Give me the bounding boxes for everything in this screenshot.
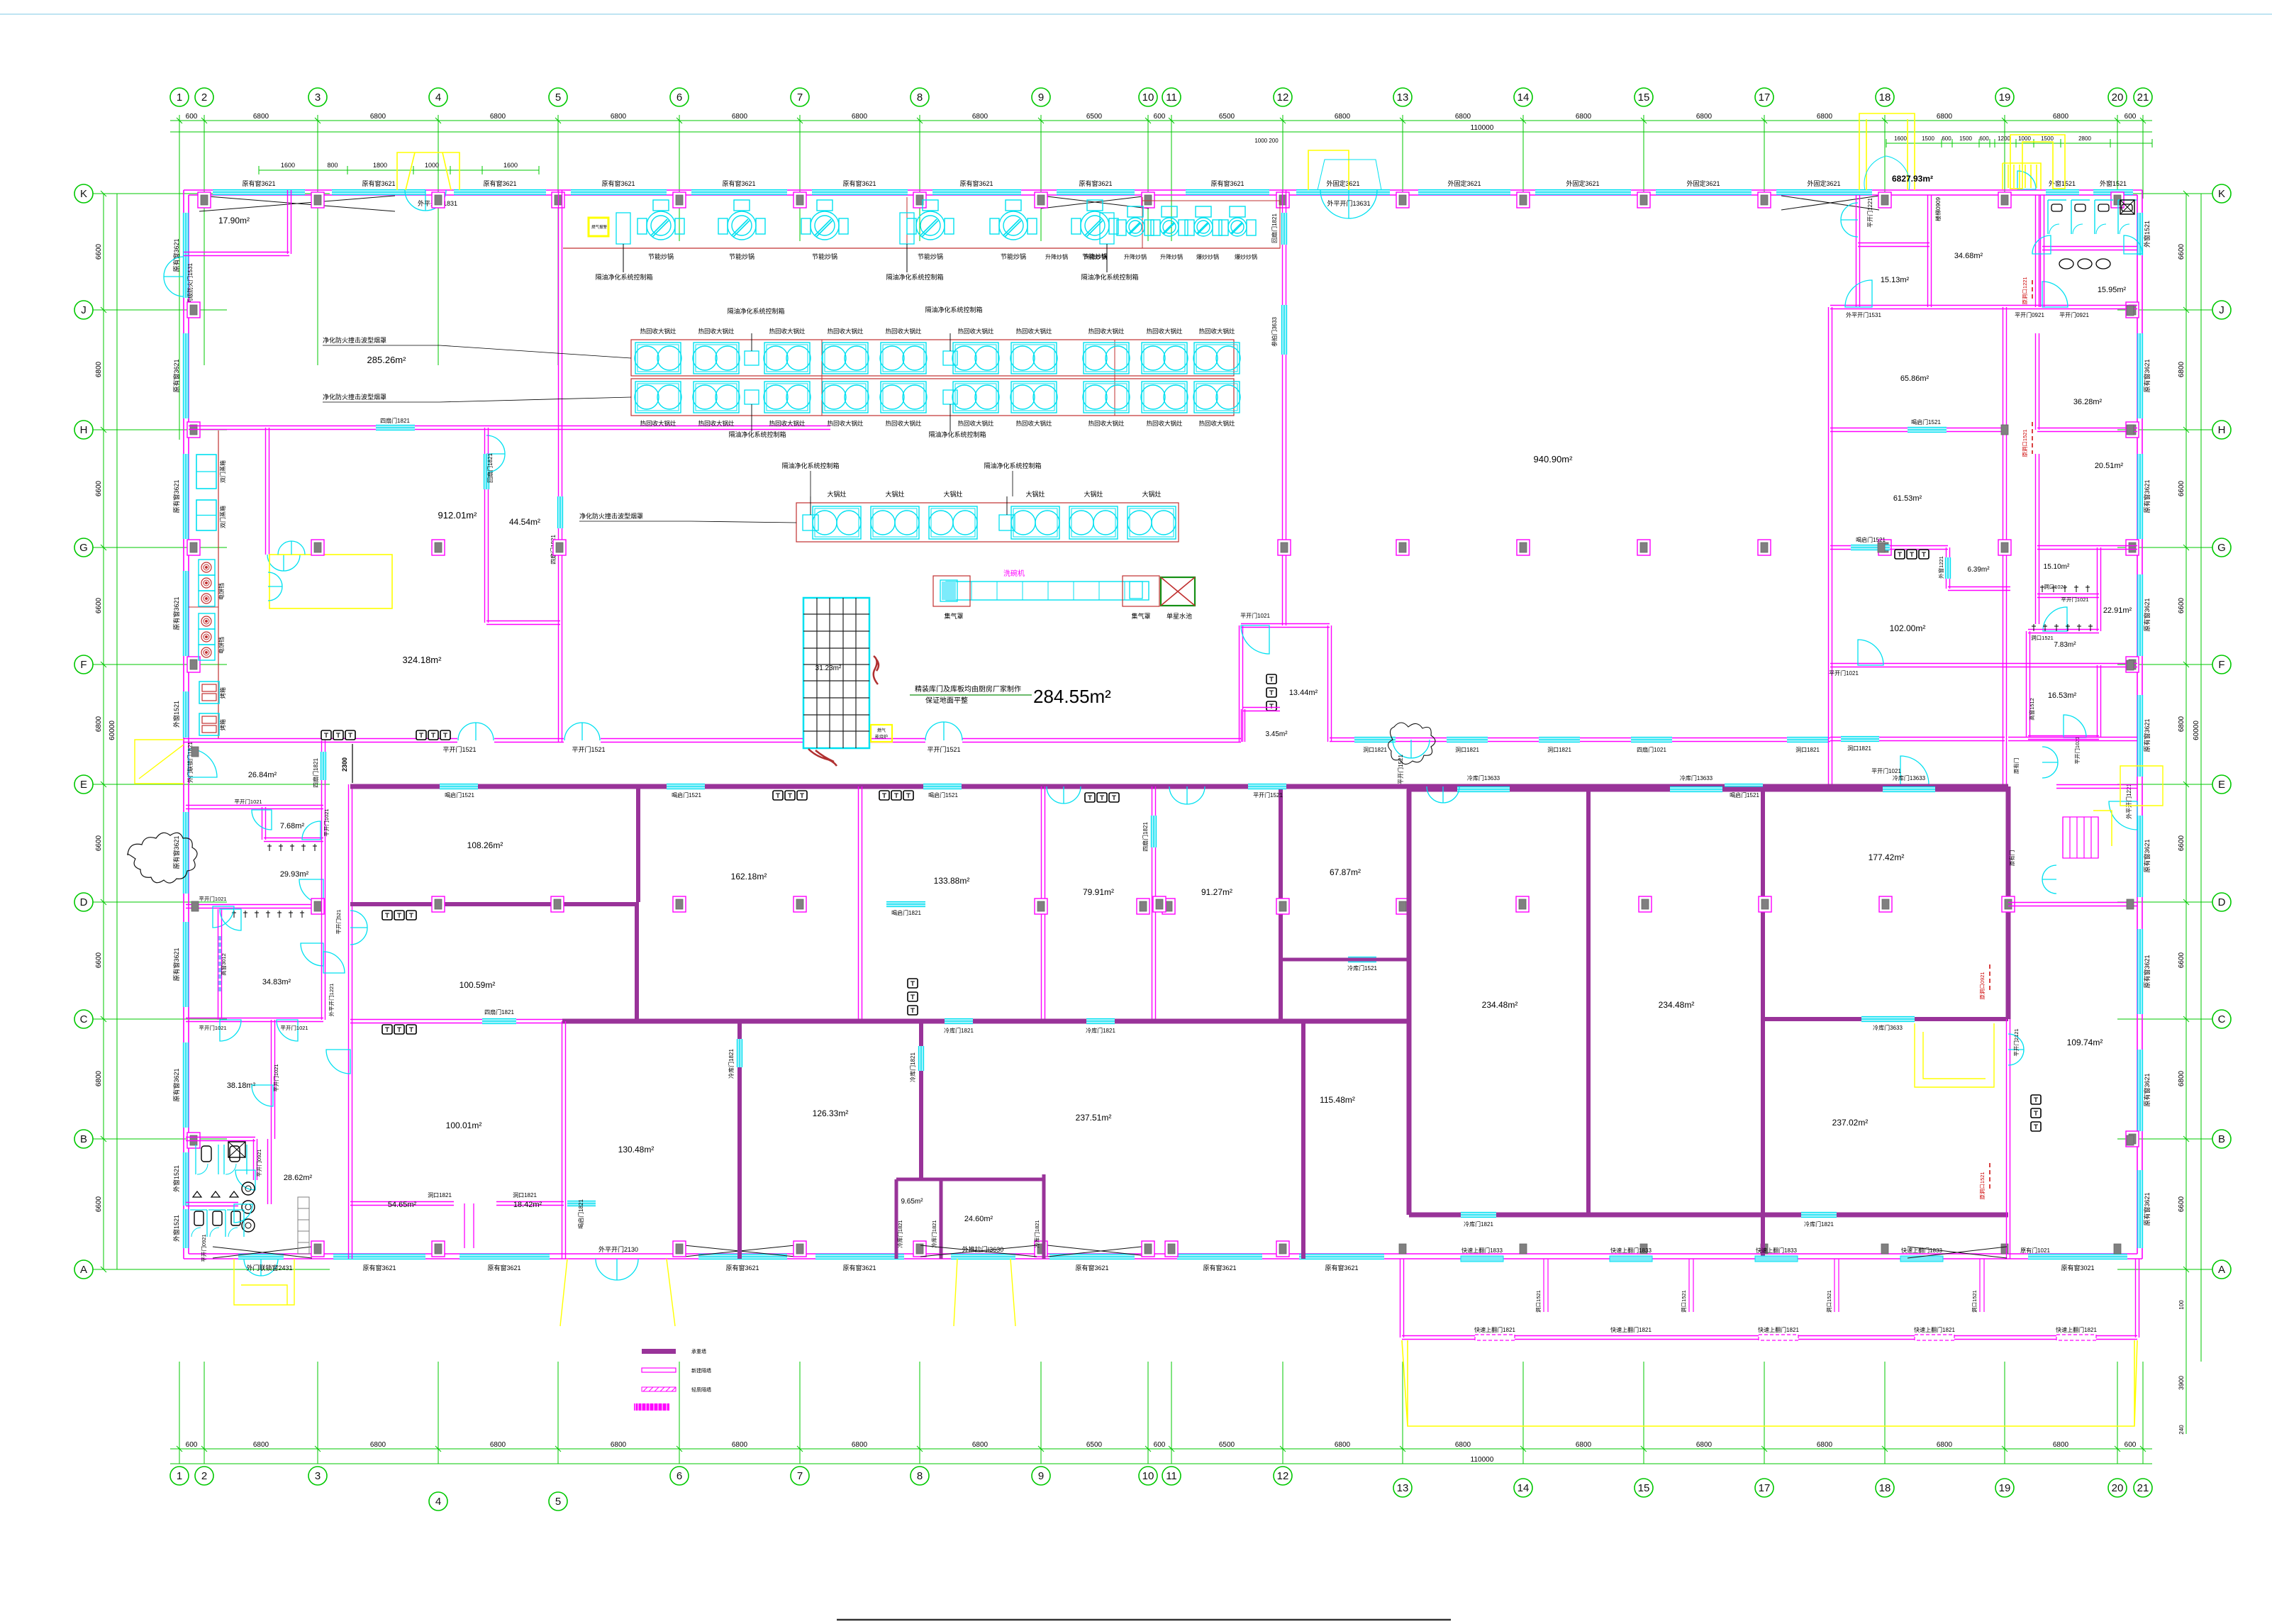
- svg-text:热回收大锅灶: 热回收大锅灶: [769, 420, 806, 427]
- svg-text:162.18m²: 162.18m²: [731, 872, 767, 881]
- svg-text:6600: 6600: [95, 597, 103, 613]
- svg-text:原有窗3621: 原有窗3621: [1075, 1264, 1108, 1272]
- svg-text:大锅灶: 大锅灶: [943, 490, 962, 498]
- svg-text:热回收大锅灶: 热回收大锅灶: [1015, 420, 1052, 427]
- svg-text:133.88m²: 133.88m²: [934, 876, 970, 886]
- svg-text:平开门0921: 平开门0921: [201, 1234, 207, 1262]
- svg-text:快速上翻门1821: 快速上翻门1821: [1610, 1326, 1652, 1333]
- svg-text:6800: 6800: [611, 1441, 627, 1449]
- svg-text:隔油净化系统控制箱: 隔油净化系统控制箱: [727, 307, 784, 315]
- svg-text:原有窗3621: 原有窗3621: [2143, 955, 2151, 988]
- svg-text:36.28m²: 36.28m²: [2073, 398, 2103, 406]
- svg-text:J: J: [2219, 304, 2224, 316]
- svg-text:原有窗3621: 原有窗3621: [172, 947, 180, 981]
- svg-text:平开门1021: 平开门1021: [273, 1064, 279, 1091]
- svg-text:7.83m²: 7.83m²: [2054, 641, 2076, 649]
- svg-text:电饼铛: 电饼铛: [218, 583, 225, 600]
- svg-text:外窗1521: 外窗1521: [172, 701, 180, 728]
- svg-text:热回收大锅灶: 热回收大锅灶: [640, 328, 676, 335]
- svg-text:H: H: [80, 424, 88, 436]
- svg-text:洞口1521: 洞口1521: [2031, 635, 2054, 641]
- svg-text:冷库门1821: 冷库门1821: [728, 1049, 735, 1079]
- svg-text:22.91m²: 22.91m²: [2103, 606, 2132, 615]
- svg-text:100.59m²: 100.59m²: [460, 980, 496, 990]
- svg-text:丙级防火门1531: 丙级防火门1531: [186, 263, 194, 304]
- svg-text:234.48m²: 234.48m²: [1482, 1000, 1518, 1010]
- svg-text:原有窗3621: 原有窗3621: [2143, 1192, 2151, 1225]
- svg-text:热回收大锅灶: 热回收大锅灶: [1015, 328, 1052, 335]
- svg-text:冷库门1821: 冷库门1821: [896, 1220, 903, 1247]
- svg-text:237.51m²: 237.51m²: [1076, 1113, 1112, 1123]
- svg-text:洞口1821: 洞口1821: [1363, 746, 1387, 753]
- svg-text:130.48m²: 130.48m²: [618, 1145, 655, 1155]
- svg-text:F: F: [2218, 659, 2224, 671]
- svg-text:原有窗3621: 原有窗3621: [172, 835, 180, 869]
- svg-text:21: 21: [2137, 1482, 2149, 1494]
- svg-text:115.48m²: 115.48m²: [1320, 1095, 1355, 1105]
- svg-text:平开门2121: 平开门2121: [2013, 1028, 2020, 1056]
- svg-text:6800: 6800: [1937, 113, 1953, 121]
- svg-text:燃气: 燃气: [877, 728, 886, 733]
- svg-text:升降炒锅: 升降炒锅: [1160, 253, 1183, 260]
- svg-text:15: 15: [1638, 1482, 1650, 1494]
- svg-text:平开门1021: 平开门1021: [2061, 596, 2088, 603]
- svg-text:6600: 6600: [2178, 835, 2185, 851]
- svg-text:节能炒锅: 节能炒锅: [648, 252, 674, 260]
- svg-text:A: A: [80, 1264, 87, 1276]
- svg-text:44.54m²: 44.54m²: [509, 517, 540, 527]
- svg-text:6: 6: [676, 1470, 682, 1482]
- svg-text:热回收大锅灶: 热回收大锅灶: [957, 328, 994, 335]
- svg-text:28.62m²: 28.62m²: [284, 1174, 313, 1182]
- svg-text:平开门1521: 平开门1521: [1253, 791, 1283, 799]
- svg-text:6800: 6800: [1576, 1441, 1592, 1449]
- svg-text:15.10m²: 15.10m²: [2044, 563, 2070, 571]
- svg-text:1000: 1000: [425, 162, 439, 169]
- svg-text:1600: 1600: [281, 162, 295, 169]
- svg-text:6800: 6800: [1817, 1441, 1833, 1449]
- svg-text:外窗1521: 外窗1521: [172, 1215, 180, 1242]
- svg-text:双门蒸箱: 双门蒸箱: [219, 506, 226, 528]
- svg-text:原洞口1221: 原洞口1221: [2022, 277, 2028, 304]
- svg-text:平开门1021: 平开门1021: [1240, 612, 1270, 619]
- svg-text:6800: 6800: [1817, 113, 1833, 121]
- svg-text:楼梯0909: 楼梯0909: [1934, 197, 1942, 221]
- svg-text:1500: 1500: [2041, 135, 2054, 142]
- svg-text:热回收大锅灶: 热回收大锅灶: [698, 328, 735, 335]
- svg-text:原有窗3621: 原有窗3621: [172, 596, 180, 630]
- svg-text:6800: 6800: [95, 361, 103, 377]
- svg-text:1000: 1000: [2018, 135, 2031, 142]
- svg-text:7: 7: [797, 1470, 803, 1482]
- svg-text:外窗1521: 外窗1521: [172, 1165, 180, 1192]
- svg-text:D: D: [2218, 896, 2226, 908]
- svg-text:四扇门1821: 四扇门1821: [380, 417, 410, 424]
- svg-text:冷库门1821: 冷库门1821: [1033, 1220, 1040, 1247]
- svg-text:外固定3621: 外固定3621: [1326, 179, 1359, 187]
- svg-text:K: K: [2218, 188, 2225, 200]
- svg-text:6500: 6500: [1219, 1441, 1235, 1449]
- svg-text:13.44m²: 13.44m²: [1289, 689, 1318, 697]
- svg-text:升降炒锅: 升降炒锅: [1045, 253, 1068, 260]
- svg-text:285.26m²: 285.26m²: [367, 355, 407, 365]
- svg-text:6500: 6500: [1086, 113, 1103, 121]
- svg-text:平开门1521: 平开门1521: [442, 745, 476, 753]
- svg-text:外窗1221: 外窗1221: [1937, 556, 1944, 579]
- svg-text:双门蒸箱: 双门蒸箱: [219, 460, 226, 483]
- svg-text:回扇门1821: 回扇门1821: [486, 453, 494, 483]
- svg-text:节能炒锅: 节能炒锅: [1001, 252, 1026, 260]
- svg-text:3: 3: [315, 91, 321, 104]
- svg-text:2: 2: [201, 1470, 207, 1482]
- svg-text:原有窗3621: 原有窗3621: [483, 179, 516, 187]
- svg-text:6600: 6600: [95, 480, 103, 496]
- svg-text:6800: 6800: [2053, 1441, 2069, 1449]
- svg-text:参拍门3633: 参拍门3633: [1271, 317, 1278, 347]
- svg-text:9: 9: [1038, 1470, 1044, 1482]
- svg-text:冷库门1821: 冷库门1821: [1086, 1027, 1115, 1034]
- svg-text:K: K: [80, 188, 87, 200]
- svg-text:烤箱: 烤箱: [219, 687, 226, 699]
- svg-text:1600: 1600: [1894, 135, 1907, 142]
- svg-text:烤箱: 烤箱: [219, 719, 226, 730]
- svg-text:热回收大锅灶: 热回收大锅灶: [1088, 420, 1125, 427]
- svg-text:110000: 110000: [1471, 124, 1494, 132]
- svg-text:原有窗3621: 原有窗3621: [1210, 179, 1244, 187]
- svg-text:2300: 2300: [341, 757, 348, 772]
- svg-text:17: 17: [1759, 1482, 1771, 1494]
- svg-text:大锅灶: 大锅灶: [1025, 490, 1045, 498]
- svg-text:隔油净化系统控制箱: 隔油净化系统控制箱: [781, 462, 839, 469]
- svg-text:110000: 110000: [1471, 1456, 1494, 1464]
- svg-text:快速上翻门1821: 快速上翻门1821: [1914, 1326, 1955, 1333]
- svg-text:24.60m²: 24.60m²: [964, 1215, 993, 1223]
- svg-text:6600: 6600: [2178, 1196, 2185, 1212]
- svg-text:四扇门1821: 四扇门1821: [312, 758, 319, 788]
- svg-text:净化防火撞击波型烟罩: 净化防火撞击波型烟罩: [323, 336, 386, 344]
- svg-text:洞口1821: 洞口1821: [428, 1191, 452, 1198]
- svg-text:6800: 6800: [972, 113, 989, 121]
- svg-text:5: 5: [555, 91, 561, 104]
- svg-text:6800: 6800: [611, 113, 627, 121]
- svg-text:6800: 6800: [1937, 1441, 1953, 1449]
- svg-text:喝启门1521: 喝启门1521: [1911, 418, 1941, 426]
- svg-text:J: J: [81, 304, 87, 316]
- svg-text:快速上翻门1821: 快速上翻门1821: [1758, 1326, 1799, 1333]
- svg-text:3: 3: [315, 1470, 321, 1482]
- svg-text:284.55m²: 284.55m²: [1033, 686, 1111, 707]
- svg-text:6800: 6800: [852, 1441, 868, 1449]
- svg-text:冷库门1821: 冷库门1821: [944, 1027, 974, 1034]
- svg-text:热回收大锅灶: 热回收大锅灶: [827, 328, 864, 335]
- svg-text:A: A: [2218, 1264, 2225, 1276]
- svg-text:31.23m²: 31.23m²: [815, 664, 842, 672]
- svg-text:回扇门1821: 回扇门1821: [1271, 213, 1278, 243]
- svg-text:原洞口1521: 原洞口1521: [1979, 1172, 1986, 1199]
- svg-text:20: 20: [2112, 1482, 2124, 1494]
- svg-text:234.48m²: 234.48m²: [1659, 1000, 1695, 1010]
- svg-text:隔油净化系统控制箱: 隔油净化系统控制箱: [925, 306, 982, 313]
- svg-text:6600: 6600: [95, 243, 103, 260]
- svg-text:600: 600: [1979, 135, 1989, 142]
- svg-text:净化防火撞击波型烟罩: 净化防火撞击波型烟罩: [579, 512, 643, 520]
- svg-text:电饼铛: 电饼铛: [218, 637, 225, 654]
- svg-text:4: 4: [435, 1496, 441, 1508]
- svg-text:940.90m²: 940.90m²: [1534, 454, 1574, 465]
- svg-text:6800: 6800: [1455, 1441, 1471, 1449]
- svg-text:大锅灶: 大锅灶: [827, 490, 846, 498]
- svg-text:喝启门1521: 喝启门1521: [1730, 791, 1759, 799]
- svg-text:平开门1521: 平开门1521: [572, 745, 605, 753]
- svg-text:爆炒炒锅: 爆炒炒锅: [1196, 253, 1219, 260]
- svg-text:原有窗3621: 原有窗3621: [842, 1264, 876, 1272]
- svg-text:102.00m²: 102.00m²: [1890, 623, 1926, 633]
- svg-text:20.51m²: 20.51m²: [2095, 462, 2124, 470]
- svg-text:6800: 6800: [2178, 361, 2185, 377]
- svg-text:109.74m²: 109.74m²: [2067, 1038, 2103, 1047]
- svg-text:6800: 6800: [1576, 113, 1592, 121]
- svg-text:新建隔墙: 新建隔墙: [691, 1367, 711, 1374]
- svg-text:外固定3621: 外固定3621: [1807, 179, 1840, 187]
- svg-text:原有窗3621: 原有窗3621: [362, 1264, 396, 1272]
- svg-text:洞口1521: 洞口1521: [1681, 1290, 1687, 1313]
- svg-text:177.42m²: 177.42m²: [1869, 852, 1905, 862]
- svg-text:17: 17: [1759, 91, 1771, 104]
- svg-text:升降炒锅: 升降炒锅: [1124, 253, 1147, 260]
- svg-text:燃气报警: 燃气报警: [591, 224, 608, 230]
- svg-text:4: 4: [435, 91, 441, 104]
- svg-text:原有窗3621: 原有窗3621: [2143, 598, 2151, 631]
- svg-text:洞口1521: 洞口1521: [1971, 1290, 1978, 1313]
- svg-text:保证地面平整: 保证地面平整: [925, 696, 968, 705]
- svg-text:13: 13: [1397, 1482, 1409, 1494]
- svg-text:2800: 2800: [2078, 135, 2091, 142]
- svg-text:67.87m²: 67.87m²: [1330, 867, 1361, 877]
- svg-text:6600: 6600: [95, 1196, 103, 1212]
- svg-text:9: 9: [1038, 91, 1044, 104]
- svg-text:原有窗3621: 原有窗3621: [362, 179, 395, 187]
- svg-text:5: 5: [555, 1496, 561, 1508]
- svg-text:平开门1021: 平开门1021: [280, 1025, 308, 1031]
- svg-text:600: 600: [186, 1441, 198, 1449]
- svg-text:原有窗3621: 原有窗3621: [172, 238, 180, 272]
- svg-text:热回收大锅灶: 热回收大锅灶: [885, 328, 922, 335]
- svg-text:126.33m²: 126.33m²: [813, 1108, 849, 1118]
- svg-text:6800: 6800: [732, 113, 748, 121]
- svg-text:热回收大锅灶: 热回收大锅灶: [957, 420, 994, 427]
- svg-text:喝启门1821: 喝启门1821: [891, 909, 921, 916]
- svg-text:6800: 6800: [2178, 1070, 2185, 1086]
- svg-text:原有窗3621: 原有窗3621: [2143, 479, 2151, 513]
- svg-text:19: 19: [1999, 91, 2011, 104]
- svg-text:外窗1521: 外窗1521: [2143, 221, 2151, 248]
- svg-text:爆炒炒锅: 爆炒炒锅: [1235, 253, 1257, 260]
- svg-text:11: 11: [1166, 91, 1177, 104]
- svg-text:原有窗3621: 原有窗3621: [2143, 1073, 2151, 1106]
- svg-text:1000 200: 1000 200: [1254, 138, 1279, 144]
- svg-text:四扇门1021: 四扇门1021: [1637, 746, 1666, 753]
- svg-text:原有窗3621: 原有窗3621: [725, 1264, 759, 1272]
- svg-text:平开门1021: 平开门1021: [199, 1025, 226, 1031]
- svg-text:洞口1521: 洞口1521: [1535, 1290, 1542, 1313]
- svg-text:14: 14: [1518, 91, 1530, 104]
- svg-text:6800: 6800: [370, 1441, 386, 1449]
- svg-text:7.68m²: 7.68m²: [280, 822, 305, 830]
- svg-text:冷库门13633: 冷库门13633: [1893, 774, 1926, 782]
- svg-text:四扇门1821: 四扇门1821: [1142, 822, 1149, 852]
- svg-text:原有窗3621: 原有窗3621: [2143, 839, 2151, 872]
- svg-text:91.27m²: 91.27m²: [1201, 887, 1232, 897]
- svg-text:2: 2: [201, 91, 207, 104]
- svg-text:热回收大锅灶: 热回收大锅灶: [827, 420, 864, 427]
- svg-text:承重墙: 承重墙: [691, 1348, 706, 1355]
- svg-text:B: B: [80, 1133, 87, 1145]
- svg-text:16.53m²: 16.53m²: [2048, 691, 2077, 700]
- svg-text:C: C: [80, 1013, 88, 1025]
- svg-text:洞口1821: 洞口1821: [1795, 746, 1820, 753]
- svg-text:节能炒锅: 节能炒锅: [812, 252, 837, 260]
- svg-text:轻质隔墙: 轻质隔墙: [691, 1386, 711, 1393]
- svg-text:洞口1821: 洞口1821: [513, 1191, 537, 1198]
- svg-text:平开门1021: 平开门1021: [234, 799, 262, 805]
- svg-text:21: 21: [2137, 91, 2149, 104]
- svg-text:8: 8: [917, 1470, 923, 1482]
- svg-text:12: 12: [1277, 91, 1289, 104]
- svg-text:600: 600: [186, 113, 198, 121]
- svg-text:原洞口0921: 原洞口0921: [1979, 972, 1986, 999]
- svg-text:外固定3621: 外固定3621: [1686, 179, 1720, 187]
- svg-text:洞口1821: 洞口1821: [1547, 746, 1571, 753]
- svg-text:高窗3012: 高窗3012: [220, 953, 227, 976]
- svg-text:平开门1021: 平开门1021: [199, 896, 226, 902]
- svg-text:6800: 6800: [1455, 113, 1471, 121]
- svg-text:6800: 6800: [1335, 1441, 1351, 1449]
- svg-text:原有窗3621: 原有窗3621: [722, 179, 755, 187]
- svg-text:6800: 6800: [370, 113, 386, 121]
- svg-text:1800: 1800: [373, 162, 387, 169]
- svg-text:108.26m²: 108.26m²: [467, 840, 503, 850]
- svg-text:平开门0921: 平开门0921: [256, 1149, 262, 1177]
- svg-text:冷库门13633: 冷库门13633: [1680, 774, 1713, 782]
- svg-text:精装库门及库板均由厨房厂家制作: 精装库门及库板均由厨房厂家制作: [915, 684, 1021, 694]
- svg-text:热回收大锅灶: 热回收大锅灶: [885, 420, 922, 427]
- svg-text:平开门1021: 平开门1021: [323, 808, 330, 836]
- svg-text:冷库门13633: 冷库门13633: [1467, 774, 1500, 782]
- svg-text:60000: 60000: [2193, 721, 2200, 740]
- svg-text:20: 20: [2112, 91, 2124, 104]
- svg-text:1: 1: [177, 91, 182, 104]
- svg-text:D: D: [80, 896, 88, 908]
- svg-text:100: 100: [2178, 1300, 2185, 1310]
- svg-text:65.86m²: 65.86m²: [1900, 374, 1929, 383]
- svg-text:平开门1521: 平开门1521: [927, 745, 960, 753]
- svg-text:原有窗3621: 原有窗3621: [172, 479, 180, 513]
- svg-text:外门联锁窗2431: 外门联锁窗2431: [246, 1264, 292, 1272]
- svg-text:600: 600: [2125, 113, 2137, 121]
- svg-text:79.91m²: 79.91m²: [1083, 887, 1114, 897]
- svg-text:隔油净化系统控制箱: 隔油净化系统控制箱: [728, 430, 786, 438]
- svg-text:升降炒锅: 升降炒锅: [1084, 253, 1107, 260]
- svg-text:11: 11: [1166, 1470, 1177, 1482]
- svg-text:6800: 6800: [852, 113, 868, 121]
- svg-text:节能炒锅: 节能炒锅: [729, 252, 754, 260]
- svg-text:6600: 6600: [2178, 480, 2185, 496]
- svg-text:四扇门1821: 四扇门1821: [484, 1008, 514, 1016]
- svg-text:平开门1521: 平开门1521: [1397, 755, 1404, 784]
- svg-text:隔油净化系统控制箱: 隔油净化系统控制箱: [886, 273, 943, 281]
- svg-text:34.68m²: 34.68m²: [1954, 252, 1983, 260]
- svg-text:17.90m²: 17.90m²: [218, 216, 250, 226]
- svg-text:E: E: [80, 779, 87, 791]
- svg-text:29.93m²: 29.93m²: [280, 870, 309, 879]
- svg-text:E: E: [2218, 779, 2225, 791]
- svg-text:6800: 6800: [253, 113, 269, 121]
- svg-text:6600: 6600: [2178, 952, 2185, 968]
- svg-text:54.65m²: 54.65m²: [388, 1201, 417, 1209]
- svg-text:6800: 6800: [490, 113, 506, 121]
- svg-text:9.65m²: 9.65m²: [901, 1198, 923, 1206]
- svg-text:隔油净化系统控制箱: 隔油净化系统控制箱: [595, 273, 652, 281]
- svg-text:F: F: [80, 659, 87, 671]
- svg-text:洞口1821: 洞口1821: [1847, 745, 1871, 752]
- svg-text:外平开门1221: 外平开门1221: [328, 984, 335, 1017]
- svg-text:6800: 6800: [1335, 113, 1351, 121]
- svg-text:原洞口1521: 原洞口1521: [2022, 429, 2028, 457]
- svg-text:集气罩: 集气罩: [944, 612, 963, 620]
- svg-text:6800: 6800: [490, 1441, 506, 1449]
- svg-text:324.18m²: 324.18m²: [403, 655, 442, 665]
- svg-text:原有窗3621: 原有窗3621: [487, 1264, 520, 1272]
- svg-text:600: 600: [1154, 1441, 1166, 1449]
- svg-text:热回收大锅灶: 热回收大锅灶: [1198, 328, 1235, 335]
- svg-text:6600: 6600: [2178, 597, 2185, 613]
- svg-text:G: G: [2217, 542, 2226, 554]
- svg-text:快速上翻门1821: 快速上翻门1821: [1474, 1326, 1515, 1333]
- svg-text:平开门0921: 平开门0921: [2015, 311, 2044, 318]
- svg-text:冷库门1821: 冷库门1821: [909, 1052, 916, 1082]
- svg-text:237.02m²: 237.02m²: [1832, 1118, 1869, 1128]
- svg-text:热回收大锅灶: 热回收大锅灶: [1146, 328, 1183, 335]
- svg-text:1500: 1500: [1922, 135, 1934, 142]
- svg-text:6600: 6600: [95, 952, 103, 968]
- svg-text:隔油净化系统控制箱: 隔油净化系统控制箱: [984, 462, 1041, 469]
- svg-text:15.95m²: 15.95m²: [2098, 286, 2127, 294]
- svg-text:原有窗3621: 原有窗3621: [1203, 1264, 1236, 1272]
- svg-text:外平开门13631: 外平开门13631: [1327, 199, 1370, 207]
- svg-text:10: 10: [1142, 1470, 1154, 1482]
- svg-text:6500: 6500: [1219, 113, 1235, 121]
- svg-text:100.01m²: 100.01m²: [446, 1120, 482, 1130]
- svg-text:隔油净化系统控制箱: 隔油净化系统控制箱: [928, 430, 986, 438]
- svg-text:单星水池: 单星水池: [1166, 612, 1192, 620]
- svg-text:G: G: [79, 542, 88, 554]
- svg-text:原有门: 原有门: [2012, 758, 2020, 774]
- svg-text:7: 7: [797, 91, 803, 104]
- svg-text:13: 13: [1397, 91, 1409, 104]
- svg-text:大锅灶: 大锅灶: [1142, 490, 1161, 498]
- svg-text:平开门1221: 平开门1221: [1866, 198, 1873, 228]
- svg-text:喝启门1521: 喝启门1521: [672, 791, 701, 799]
- svg-text:高窗1512: 高窗1512: [2028, 698, 2035, 721]
- svg-text:原有门: 原有门: [2008, 850, 2015, 867]
- svg-text:喝启门1521: 喝启门1521: [928, 791, 958, 799]
- svg-text:1: 1: [177, 1470, 182, 1482]
- svg-text:冷库门3633: 冷库门3633: [1873, 1024, 1903, 1031]
- svg-text:喝启门1521: 喝启门1521: [1856, 536, 1886, 543]
- svg-text:喝启门1521: 喝启门1521: [445, 791, 474, 799]
- svg-text:600: 600: [1154, 113, 1166, 121]
- svg-text:原有窗3621: 原有窗3621: [2143, 359, 2151, 392]
